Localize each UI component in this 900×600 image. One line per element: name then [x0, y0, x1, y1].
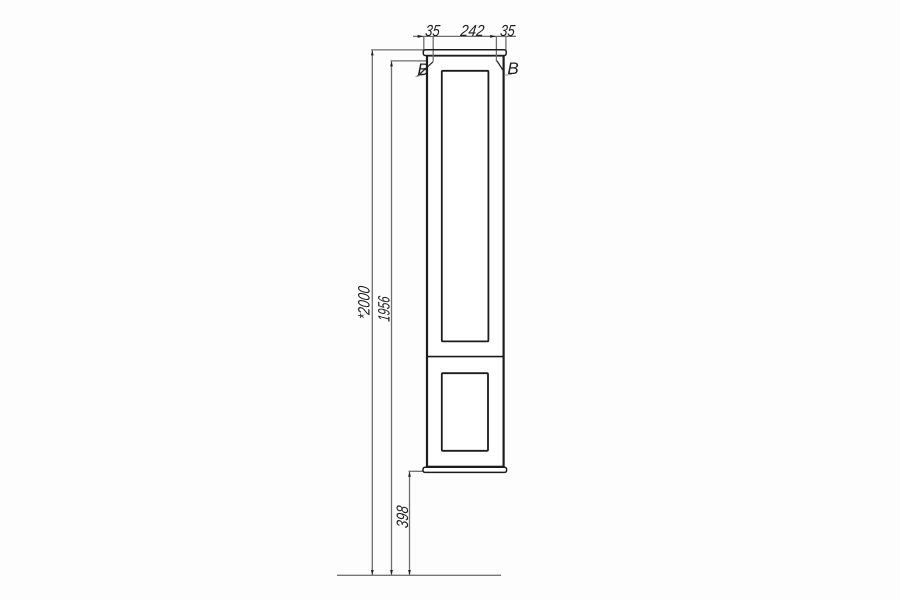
svg-text:B: B [417, 60, 428, 79]
svg-text:35: 35 [424, 22, 441, 40]
svg-text:35: 35 [499, 22, 516, 40]
svg-text:1956: 1956 [374, 294, 393, 322]
svg-text:B: B [507, 59, 518, 78]
svg-text:242: 242 [459, 22, 486, 40]
svg-text:*2000: *2000 [355, 284, 374, 320]
svg-text:398: 398 [393, 504, 412, 529]
